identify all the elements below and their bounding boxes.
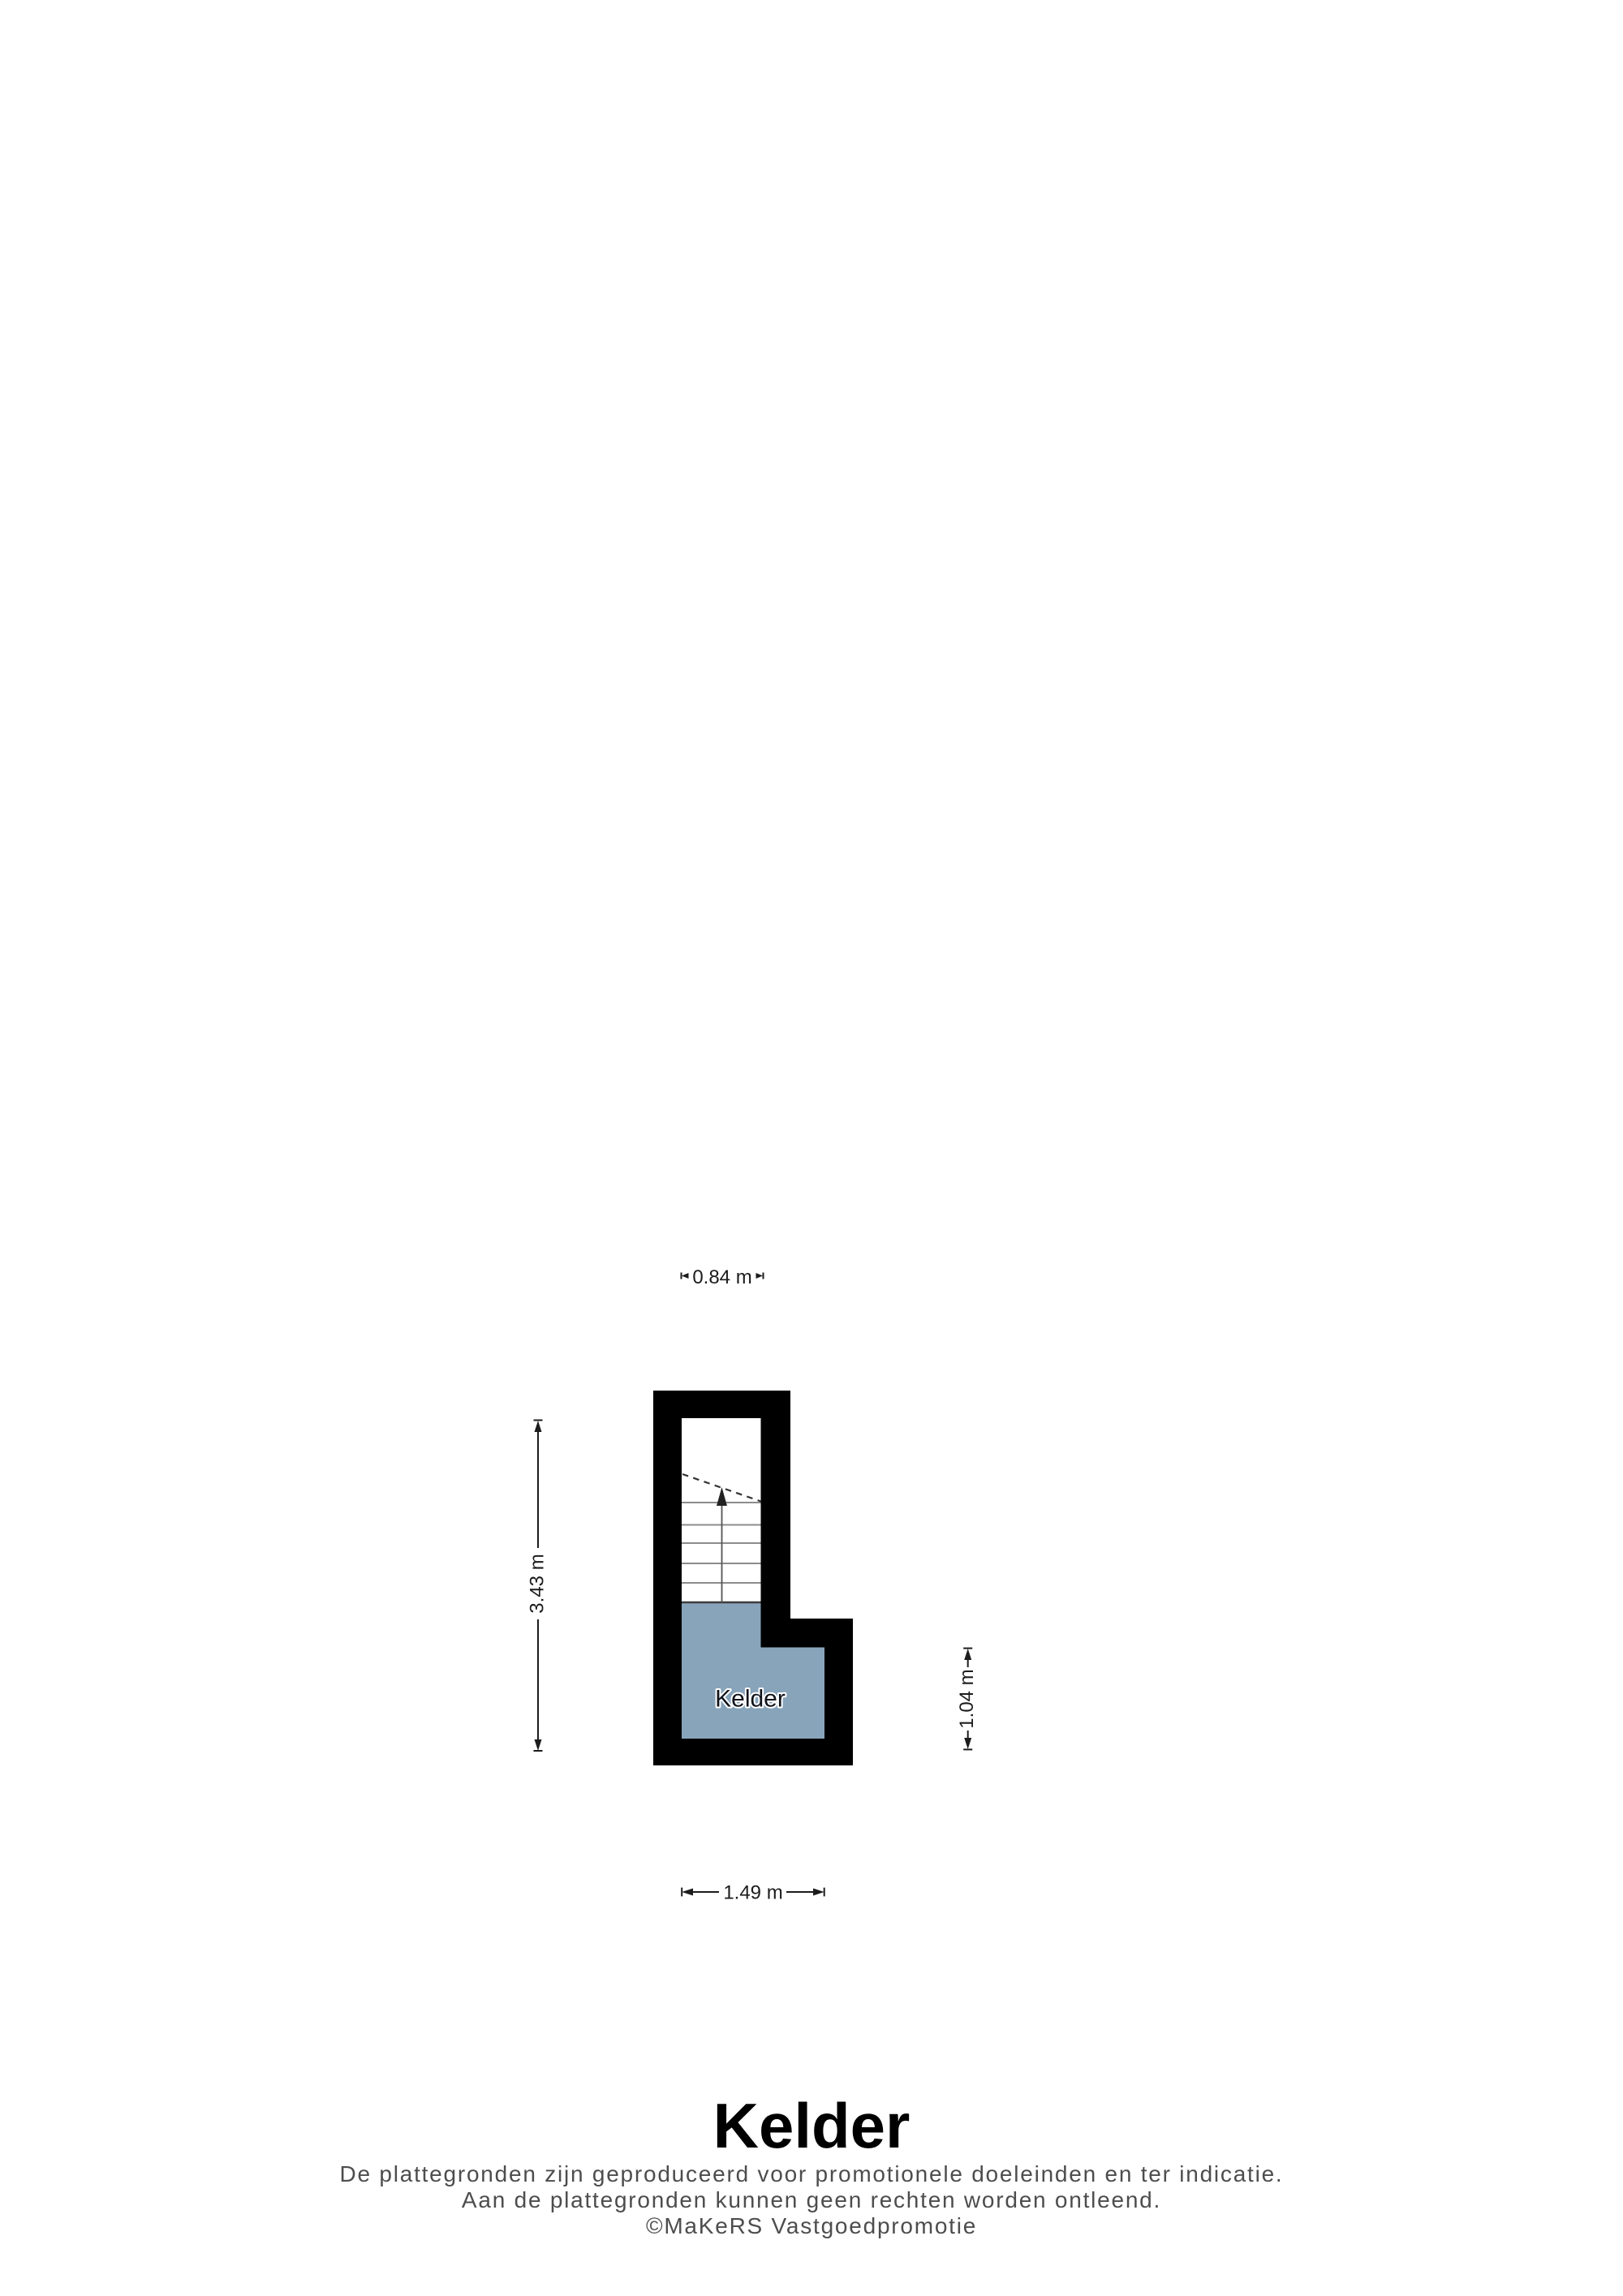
svg-text:De plattegronden zijn geproduc: De plattegronden zijn geproduceerd voor … [340,2161,1284,2186]
svg-text:©MaKeRS Vastgoedpromotie: ©MaKeRS Vastgoedpromotie [646,2213,977,2238]
svg-text:Kelder: Kelder [715,1686,786,1713]
svg-text:Kelder: Kelder [713,2090,911,2161]
svg-text:1.04 m: 1.04 m [956,1669,978,1728]
svg-text:3.43 m: 3.43 m [526,1554,548,1613]
svg-text:0.84 m: 0.84 m [692,1266,751,1288]
svg-text:1.49 m: 1.49 m [723,1882,782,1904]
svg-text:Aan de plattegronden kunnen ge: Aan de plattegronden kunnen geen rechten… [462,2187,1161,2212]
